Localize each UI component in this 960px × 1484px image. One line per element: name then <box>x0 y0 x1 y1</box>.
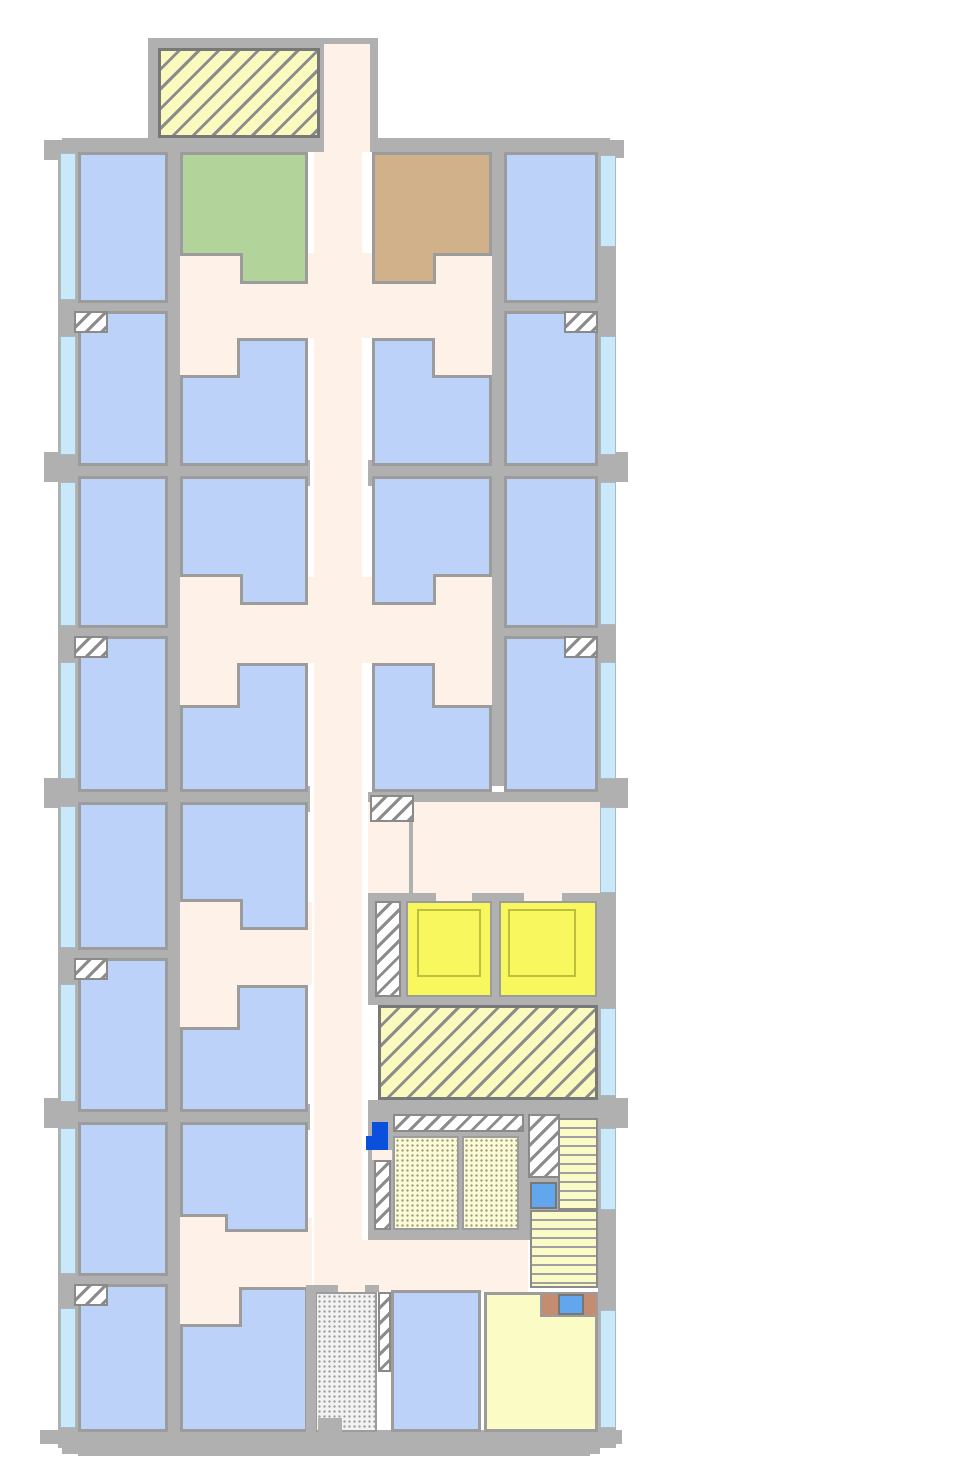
room-inner-right-3-seam <box>375 573 433 581</box>
ramp-wall-top-2 <box>365 1285 379 1292</box>
equipment-box-blue-2 <box>366 1136 388 1150</box>
window-right-7 <box>600 1128 616 1210</box>
equipment-box-blue-1 <box>372 1122 388 1136</box>
annex-hall <box>324 44 370 152</box>
divider-right-2 <box>504 628 614 636</box>
facade-bottom-lip <box>78 1448 590 1456</box>
riser-hatch-left-2 <box>74 636 108 658</box>
entry-notch-il4 <box>180 663 240 708</box>
divider-left-3 <box>58 950 168 958</box>
ramp-notch <box>318 1418 342 1434</box>
divider-right-1 <box>504 303 614 311</box>
crosswall-1-left <box>58 466 310 476</box>
room-inner-left-1-green <box>180 152 308 256</box>
crosswall-2-left <box>58 792 310 802</box>
entry-notch-ir2 <box>432 338 492 378</box>
lobby-band-1 <box>180 253 492 338</box>
entry-notch-il8 <box>180 1287 242 1327</box>
divider-left-2 <box>58 628 168 636</box>
window-left-1 <box>60 153 76 300</box>
elevator-car-2-cab <box>508 909 576 977</box>
room-inner-right-3 <box>372 476 492 577</box>
window-right-1 <box>600 155 616 247</box>
room-inner-left-3-ext <box>240 577 308 605</box>
restroom-dotted-2 <box>462 1136 519 1230</box>
room-inner-left-3 <box>180 476 308 577</box>
room-outer-left-6 <box>78 958 168 1112</box>
room-outer-right-1 <box>504 152 598 303</box>
room-outer-left-8 <box>78 1284 168 1432</box>
elevator-car-1-cab <box>417 909 481 977</box>
room-outer-left-2 <box>78 311 168 466</box>
annex-shaft-hatched <box>158 48 320 138</box>
entry-notch-ir4 <box>432 663 492 708</box>
room-bottom-center-blue <box>391 1290 481 1432</box>
room-inner-right-1-tan-ext <box>372 256 436 284</box>
divider-left-1 <box>58 303 168 311</box>
stair-upper-run <box>558 1118 598 1210</box>
entry-notch-il6 <box>180 985 240 1030</box>
room-inner-left-3-seam <box>243 573 305 581</box>
window-right-4 <box>600 662 616 779</box>
window-left-2 <box>60 336 76 455</box>
room-inner-right-1-tan-seam <box>375 252 433 260</box>
service-hatch-block <box>528 1114 560 1178</box>
window-right-3 <box>600 482 616 625</box>
window-right-5 <box>600 807 616 893</box>
room-inner-left-1-green-seam <box>243 252 305 260</box>
window-right-2 <box>600 336 616 455</box>
room-outer-left-5 <box>78 802 168 950</box>
floor-plan <box>0 0 960 1484</box>
window-right-6 <box>600 1008 616 1096</box>
crosswall-1-right <box>368 466 616 476</box>
service-hall <box>362 1240 528 1292</box>
riser-hatch-left-1 <box>74 311 108 333</box>
riser-hatch-left-3 <box>74 958 108 980</box>
riser-hatch-right-1 <box>564 311 598 333</box>
entry-notch-il7 <box>180 1214 228 1232</box>
window-left-7 <box>60 1128 76 1274</box>
crosswall-3-left <box>58 1112 310 1122</box>
room-outer-right-2 <box>504 311 598 466</box>
room-inner-right-3-ext <box>372 577 436 605</box>
stair-lower-run <box>530 1210 598 1288</box>
room-inner-left-5-seam <box>243 898 305 906</box>
lobby-shaft-hatch <box>370 795 414 822</box>
window-right-8 <box>600 1310 616 1428</box>
riser-hatch-left-4 <box>74 1284 108 1306</box>
window-left-8 <box>60 1308 76 1428</box>
entry-notch-il2 <box>180 338 240 378</box>
window-left-5 <box>60 806 76 948</box>
riser-hatch-right-2 <box>564 636 598 658</box>
room-outer-right-4 <box>504 636 598 792</box>
window-left-6 <box>60 984 76 1102</box>
room-inner-left-1-green-ext <box>240 256 308 284</box>
room-inner-left-5-ext <box>240 902 308 930</box>
service-hatch-strip-top <box>393 1114 524 1132</box>
room-outer-left-3 <box>78 476 168 628</box>
shaft-hatch-bottom <box>378 1292 391 1372</box>
ramp-wall-left <box>306 1287 316 1432</box>
window-left-4 <box>60 662 76 779</box>
service-pocket <box>372 1150 392 1160</box>
room-outer-left-1 <box>78 152 168 303</box>
lobby-partition-wall <box>409 822 413 893</box>
ramp-stippled <box>315 1292 377 1432</box>
lobby-band-2 <box>180 577 492 663</box>
mechanical-room-hatched <box>378 1005 598 1100</box>
restroom-dotted-1 <box>393 1136 459 1230</box>
room-inner-left-5 <box>180 802 308 902</box>
window-left-3 <box>60 482 76 626</box>
elevator-shaft-hatch <box>375 901 401 997</box>
room-outer-left-4 <box>78 636 168 792</box>
stair-landing-square <box>530 1182 557 1209</box>
room-inner-right-1-tan <box>372 152 492 256</box>
room-outer-right-3 <box>504 476 598 628</box>
room-outer-left-7 <box>78 1122 168 1276</box>
counter-blue-square <box>558 1294 584 1315</box>
divider-left-4 <box>58 1276 168 1284</box>
service-hatch-strip-left <box>374 1160 391 1230</box>
